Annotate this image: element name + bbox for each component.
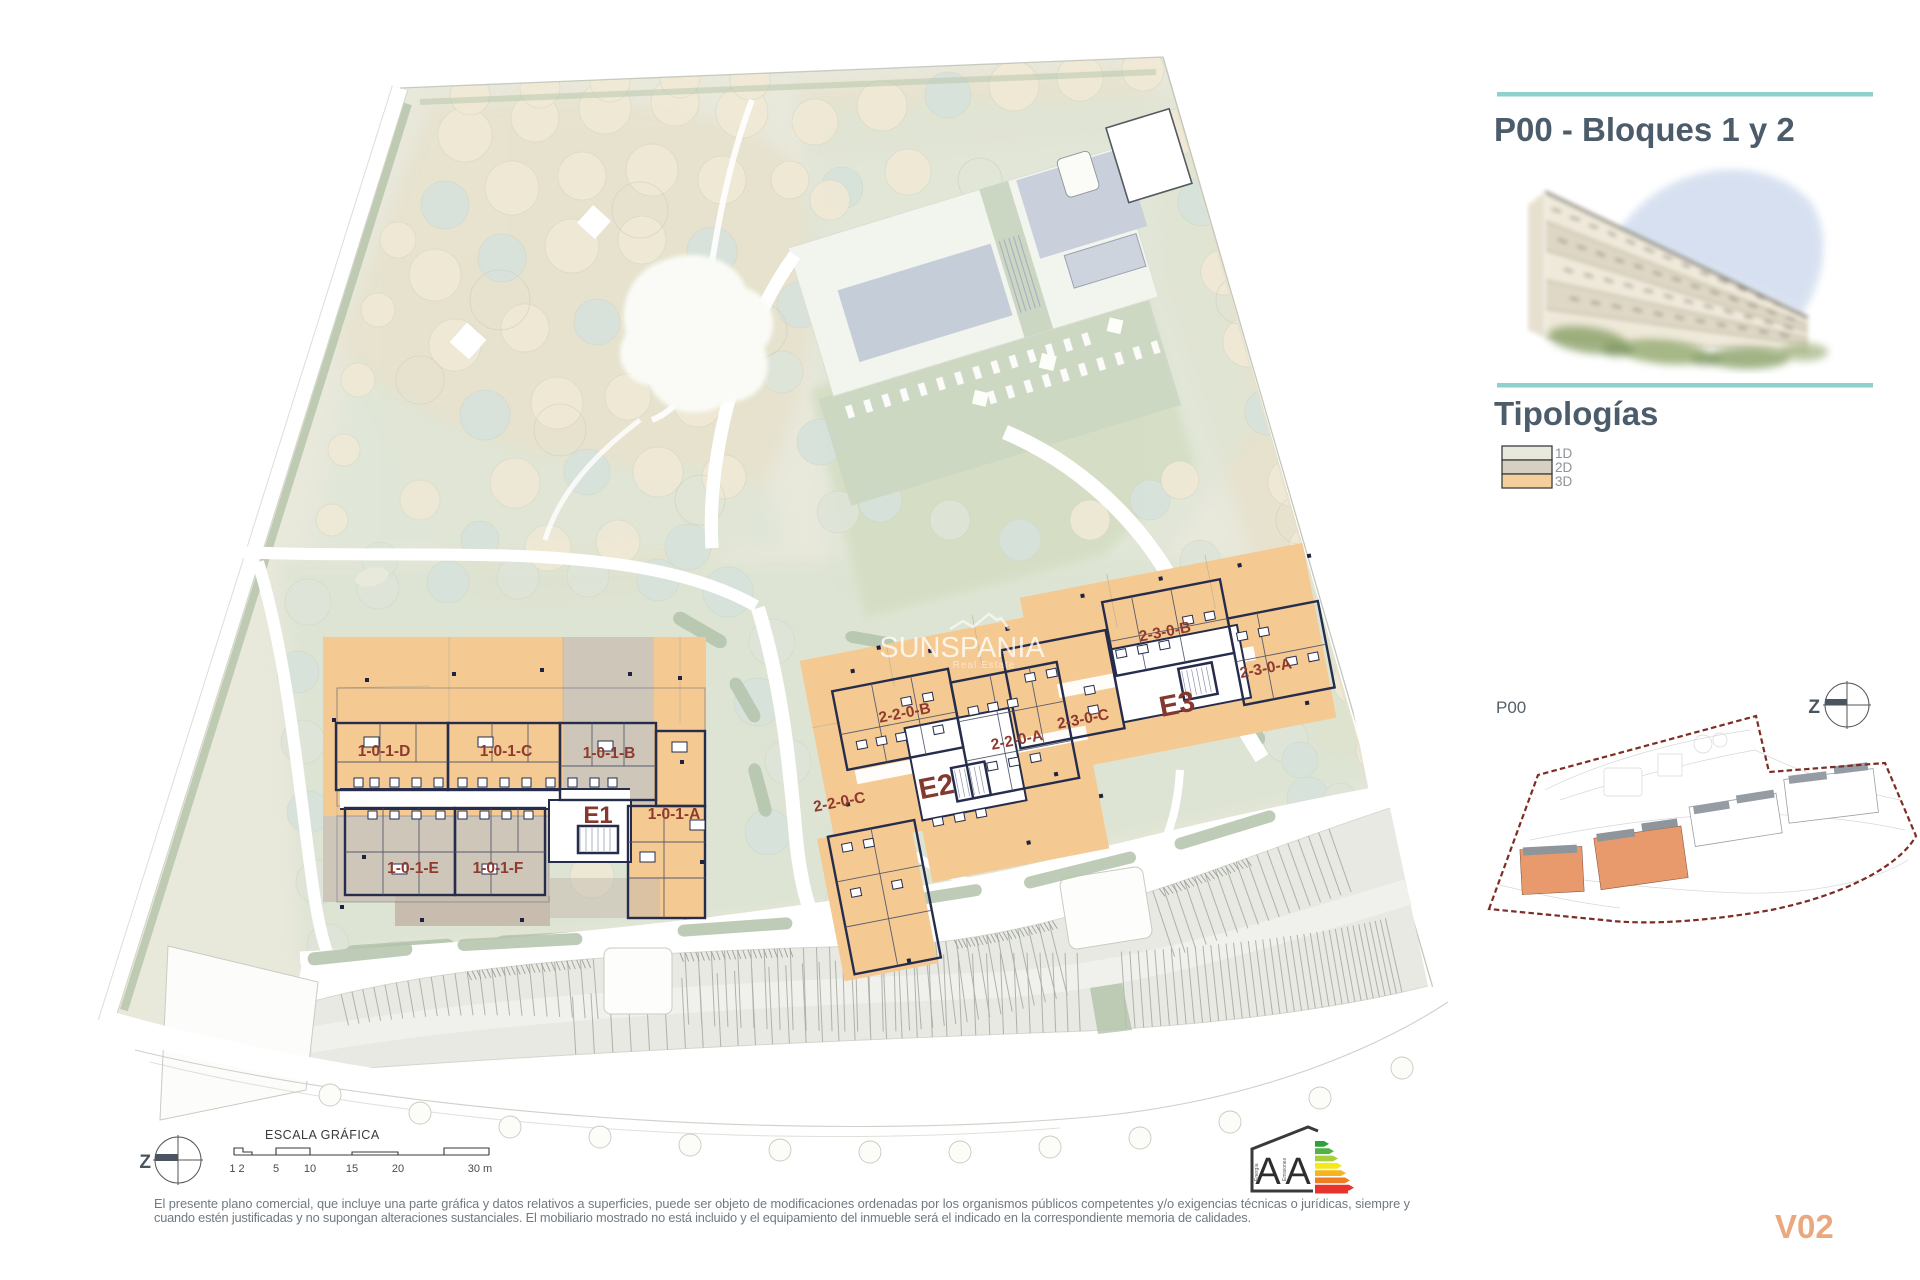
svg-text:ESCALA GRÁFICA: ESCALA GRÁFICA (265, 1127, 380, 1142)
svg-text:P00 - Bloques 1 y 2: P00 - Bloques 1 y 2 (1494, 111, 1795, 148)
svg-text:cuando estén justificadas y no: cuando estén justificadas y no supongan … (154, 1210, 1251, 1225)
svg-text:1D: 1D (1555, 446, 1573, 461)
svg-text:Z: Z (139, 1152, 151, 1173)
svg-text:Energía: Energía (1254, 1163, 1260, 1181)
svg-text:1-0-1-E: 1-0-1-E (387, 860, 439, 877)
svg-text:30 m: 30 m (468, 1163, 492, 1175)
svg-text:1-0-1-A: 1-0-1-A (648, 806, 701, 823)
svg-text:Tipologías: Tipologías (1494, 395, 1658, 432)
svg-text:1-0-1-F: 1-0-1-F (473, 860, 524, 877)
svg-text:E1: E1 (583, 802, 612, 829)
svg-text:Real Estate: Real Estate (953, 660, 1016, 671)
svg-text:1 2: 1 2 (229, 1163, 244, 1175)
svg-text:V02: V02 (1775, 1208, 1834, 1245)
svg-text:E2: E2 (916, 768, 957, 806)
svg-text:10: 10 (304, 1163, 316, 1175)
svg-text:P00: P00 (1496, 698, 1526, 717)
svg-text:20: 20 (392, 1163, 404, 1175)
svg-text:15: 15 (346, 1163, 358, 1175)
svg-text:A: A (1285, 1151, 1311, 1193)
svg-text:1-0-1-D: 1-0-1-D (358, 743, 411, 760)
svg-text:2D: 2D (1555, 460, 1573, 475)
svg-text:1-0-1-B: 1-0-1-B (583, 745, 636, 762)
svg-text:Z: Z (1808, 697, 1820, 718)
svg-text:3D: 3D (1555, 474, 1573, 489)
svg-text:5: 5 (273, 1163, 279, 1175)
svg-text:El presente plano comercial, q: El presente plano comercial, que incluye… (154, 1196, 1411, 1211)
svg-text:Emisiones: Emisiones (1282, 1157, 1288, 1181)
svg-text:1-0-1-C: 1-0-1-C (480, 743, 533, 760)
svg-text:E3: E3 (1157, 686, 1198, 724)
